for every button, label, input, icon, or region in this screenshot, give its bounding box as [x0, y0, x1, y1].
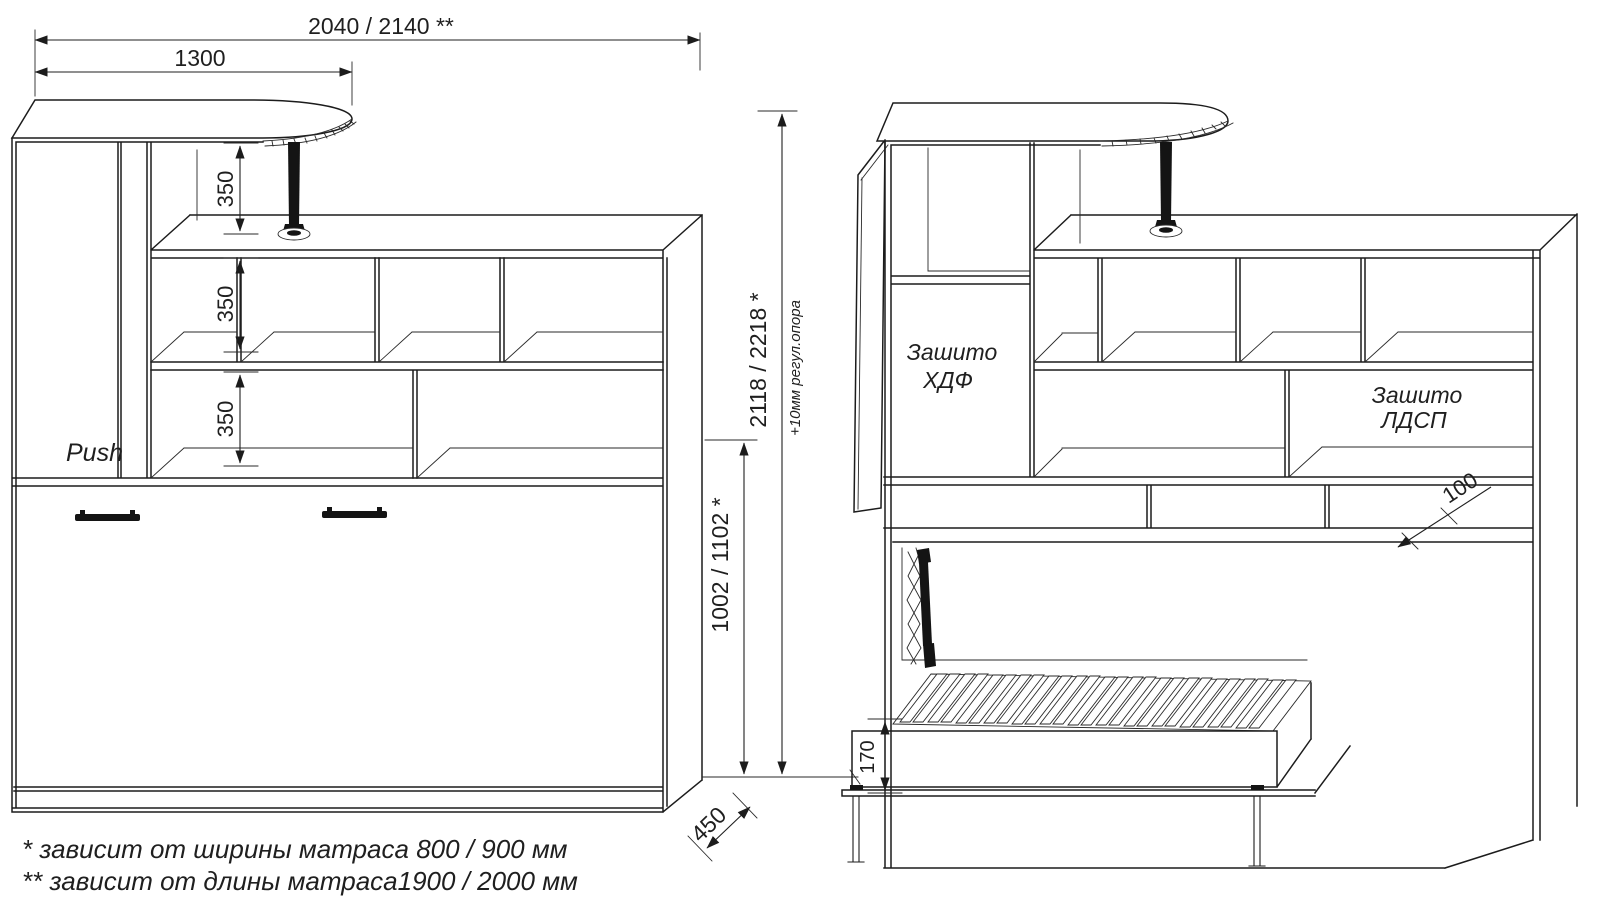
dim-shelf-gap-1-label: 350: [213, 171, 238, 208]
dimension-shelf-gap-2: 350: [213, 258, 258, 352]
dim-height-note-label: +10мм регул.опора: [787, 300, 804, 436]
dimension-total-height: 2118 / 2218 * +10мм регул.опора: [703, 111, 860, 784]
wall-bed-drawing: Push 2040 / 2140 ** 1300 350 350 350 211…: [0, 0, 1600, 898]
dim-shelf-gap-3-label: 350: [213, 401, 238, 438]
desk-support-pole: [278, 142, 310, 240]
dimension-bed-frame-height: 170: [857, 719, 902, 793]
dimension-depth: 450: [686, 793, 757, 861]
open-view: Зашито ХДФ Зашито ЛДСП 100 170: [842, 103, 1577, 868]
push-label: Push: [66, 439, 123, 467]
dim-bed-section-height-label: 1002 / 1102 *: [707, 497, 733, 632]
dimension-slat-offset: 100: [1398, 467, 1491, 549]
dim-shelf-gap-2-label: 350: [213, 286, 238, 323]
desk-top: [12, 100, 352, 138]
dim-desk-width-label: 1300: [174, 45, 225, 71]
cabinet-carcass: [12, 138, 702, 812]
bed-leg-right: [1249, 785, 1265, 866]
footnote-2: ** зависит от длины матраса1900 / 2000 м…: [22, 866, 578, 896]
dimension-total-width: 2040 / 2140 **: [35, 13, 700, 96]
cabinet-carcass-open: [884, 140, 1577, 868]
dimension-desk-width: 1300: [35, 45, 352, 105]
closed-view: Push: [12, 100, 702, 812]
dim-slat-offset-label: 100: [1438, 467, 1482, 508]
sheathed-ldsp-line2: ЛДСП: [1379, 407, 1447, 433]
dim-total-width-label: 2040 / 2140 **: [308, 13, 454, 39]
technical-drawing-page: Push 2040 / 2140 ** 1300 350 350 350 211…: [0, 0, 1600, 898]
sheathed-hdf-line1: Зашито: [907, 339, 998, 365]
footnote-1: * зависит от ширины матраса 800 / 900 мм: [22, 834, 568, 864]
bed-handle-left: [75, 510, 140, 521]
footnotes: * зависит от ширины матраса 800 / 900 мм…: [22, 834, 578, 896]
sheathed-hdf-line2: ХДФ: [922, 367, 973, 393]
dim-total-height-label: 2118 / 2218 *: [745, 292, 771, 427]
desk-support-pole-open: [1150, 142, 1182, 237]
sheathed-ldsp-line1: Зашито: [1372, 382, 1463, 408]
bed-open: [842, 674, 1350, 866]
dimension-bed-section-height: 1002 / 1102 *: [705, 440, 757, 774]
dim-bed-frame-height-label: 170: [857, 740, 879, 773]
dimension-shelf-gap-1: 350: [213, 143, 258, 234]
dimension-shelf-gap-3: 350: [213, 372, 258, 466]
gas-strut: [907, 548, 936, 668]
open-door: [854, 140, 888, 512]
bed-handle-right: [322, 507, 387, 518]
